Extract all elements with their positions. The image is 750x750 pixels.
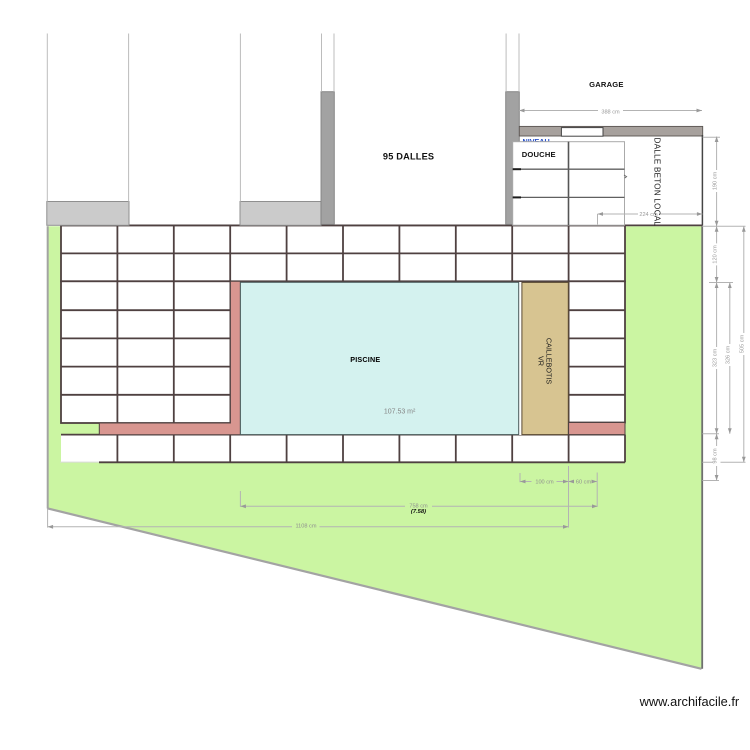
svg-text:388 cm: 388 cm — [601, 109, 620, 115]
svg-text:www.archifacile.fr: www.archifacile.fr — [639, 694, 740, 709]
svg-text:326 cm: 326 cm — [726, 345, 732, 364]
svg-text:505 cm: 505 cm — [740, 334, 746, 353]
svg-text:DALLE BETON LOCAL: DALLE BETON LOCAL — [652, 138, 661, 227]
svg-text:323 cm: 323 cm — [712, 348, 718, 367]
svg-text:GARAGE: GARAGE — [589, 80, 624, 89]
svg-text:120 cm: 120 cm — [712, 245, 718, 264]
svg-text:(7.58): (7.58) — [411, 509, 426, 515]
svg-text:PISCINE: PISCINE — [350, 355, 380, 364]
svg-text:100 cm: 100 cm — [535, 480, 554, 486]
svg-text:1108 cm: 1108 cm — [295, 523, 316, 529]
svg-text:98 cm: 98 cm — [712, 448, 718, 464]
svg-text:VR: VR — [537, 356, 546, 366]
svg-text:107.53 m²: 107.53 m² — [384, 408, 416, 415]
svg-text:60 cm: 60 cm — [576, 480, 592, 486]
svg-text:95 DALLES: 95 DALLES — [383, 152, 434, 162]
svg-text:DOUCHE: DOUCHE — [522, 150, 556, 159]
svg-text:190 cm: 190 cm — [712, 171, 718, 190]
